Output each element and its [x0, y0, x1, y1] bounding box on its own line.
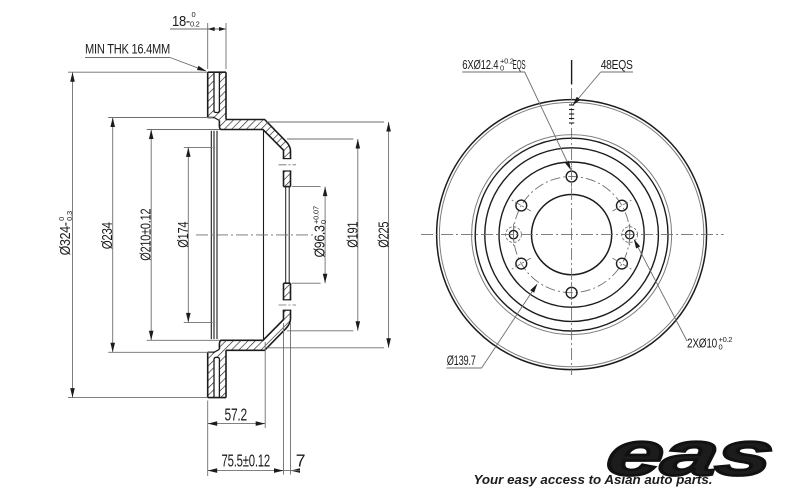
svg-text:18-: 18-: [172, 13, 190, 30]
svg-text:Ø96.3: Ø96.3: [312, 225, 328, 257]
svg-text:0.2: 0.2: [190, 20, 200, 29]
svg-text:0: 0: [719, 343, 723, 352]
svg-text:0: 0: [319, 220, 328, 224]
svg-text:Ø191: Ø191: [345, 222, 361, 248]
svg-text:2XØ10: 2XØ10: [687, 336, 717, 351]
svg-text:Ø174: Ø174: [176, 222, 192, 248]
svg-text:Ø210±0.12: Ø210±0.12: [138, 209, 154, 261]
svg-text:0: 0: [192, 10, 196, 19]
svg-text:0.3: 0.3: [65, 211, 74, 221]
svg-text:Your easy access to Asian auto: Your easy access to Asian auto parts.: [474, 472, 713, 487]
svg-text:Ø139.7: Ø139.7: [447, 353, 476, 368]
svg-text:57.2: 57.2: [225, 405, 248, 425]
svg-text:75.5±0.12: 75.5±0.12: [222, 451, 271, 471]
svg-text:7: 7: [296, 451, 305, 471]
svg-text:Ø225: Ø225: [376, 222, 392, 248]
svg-text:Ø234: Ø234: [100, 222, 116, 249]
svg-text:0: 0: [500, 64, 504, 73]
svg-text:48EQS: 48EQS: [601, 57, 633, 72]
svg-text:Ø324-: Ø324-: [58, 222, 74, 255]
svg-text:6XØ12.4: 6XØ12.4: [462, 57, 498, 72]
svg-text:MIN THK 16.4MM: MIN THK 16.4MM: [85, 42, 170, 57]
svg-text:EQS: EQS: [513, 57, 526, 72]
